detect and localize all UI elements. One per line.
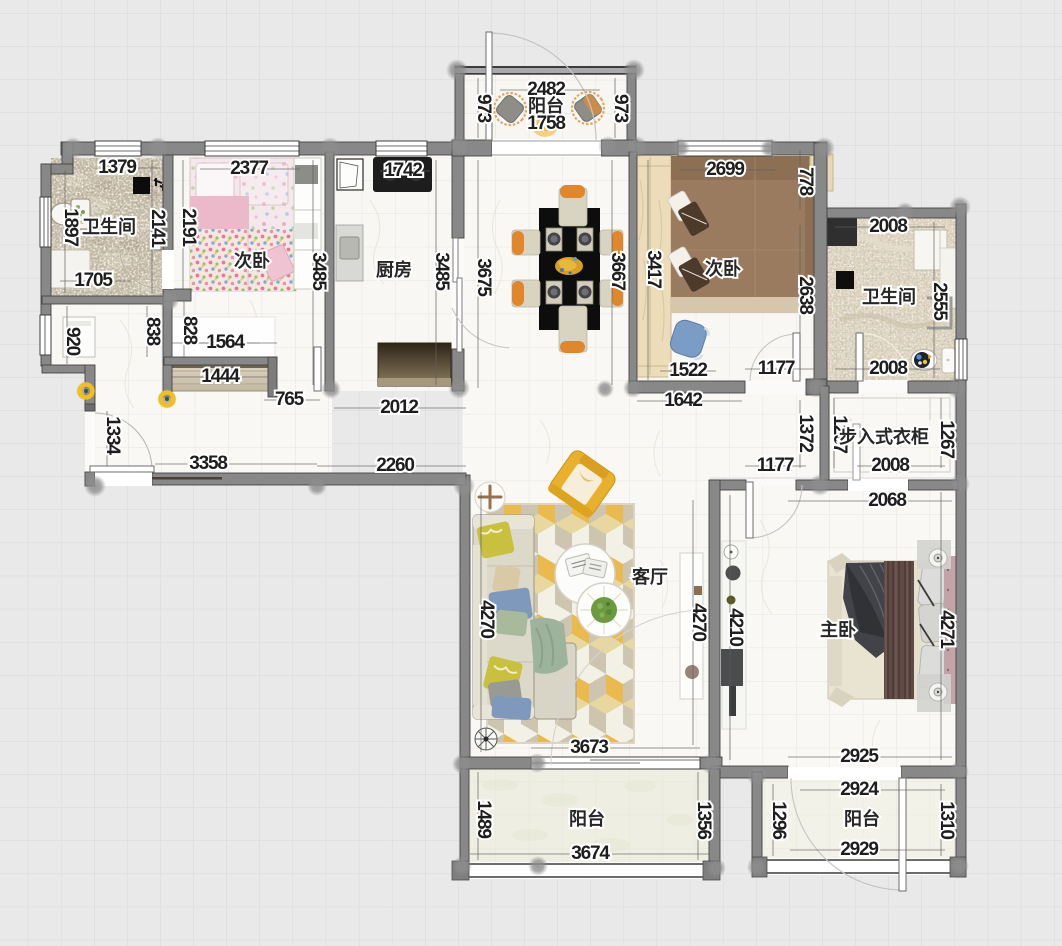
svg-text:主卧: 主卧 (820, 619, 856, 640)
svg-text:步入式衣柜: 步入式衣柜 (839, 426, 929, 447)
svg-text:1379: 1379 (98, 157, 136, 178)
svg-text:2068: 2068 (868, 490, 906, 511)
svg-text:阳台: 阳台 (844, 808, 880, 829)
svg-text:3485: 3485 (431, 252, 452, 291)
svg-text:3667: 3667 (607, 252, 628, 290)
svg-text:1705: 1705 (74, 270, 113, 291)
svg-text:1444: 1444 (201, 366, 240, 387)
svg-text:1564: 1564 (206, 332, 245, 353)
svg-text:3358: 3358 (189, 453, 227, 474)
svg-text:3673: 3673 (570, 737, 608, 758)
svg-text:2260: 2260 (376, 455, 414, 476)
svg-text:1177: 1177 (757, 455, 794, 476)
svg-text:778: 778 (795, 167, 816, 196)
svg-text:838: 838 (142, 317, 163, 346)
svg-text:2191: 2191 (178, 208, 199, 247)
svg-text:920: 920 (62, 327, 83, 356)
svg-text:3417: 3417 (643, 250, 664, 288)
svg-text:1310: 1310 (936, 801, 957, 839)
svg-text:4270: 4270 (476, 600, 497, 638)
svg-text:2924: 2924 (840, 779, 879, 800)
svg-text:1642: 1642 (664, 390, 702, 411)
svg-text:2008: 2008 (869, 216, 907, 237)
svg-text:1897: 1897 (60, 208, 81, 246)
svg-text:1267: 1267 (936, 420, 957, 458)
svg-text:阳台: 阳台 (569, 808, 605, 829)
svg-text:2141: 2141 (147, 209, 168, 248)
svg-text:2555: 2555 (929, 282, 950, 321)
svg-text:2929: 2929 (840, 839, 878, 860)
svg-text:1489: 1489 (473, 800, 494, 838)
svg-text:卫生间: 卫生间 (82, 216, 136, 237)
svg-text:1356: 1356 (693, 801, 714, 839)
svg-text:次卧: 次卧 (234, 250, 270, 271)
svg-text:2925: 2925 (840, 746, 879, 767)
svg-text:2638: 2638 (795, 276, 816, 314)
svg-text:3485: 3485 (308, 252, 329, 291)
svg-text:1522: 1522 (669, 360, 707, 381)
svg-text:3675: 3675 (473, 258, 494, 297)
svg-text:1177: 1177 (758, 358, 795, 379)
svg-text:3674: 3674 (571, 843, 610, 864)
svg-text:4270: 4270 (688, 603, 709, 641)
svg-text:卫生间: 卫生间 (862, 286, 916, 307)
svg-text:厨房: 厨房 (376, 259, 412, 280)
svg-text:4210: 4210 (725, 608, 746, 646)
svg-text:1334: 1334 (102, 416, 123, 455)
svg-text:2377: 2377 (230, 158, 268, 179)
svg-text:1758: 1758 (527, 113, 565, 134)
svg-text:次卧: 次卧 (705, 258, 741, 279)
svg-text:1742: 1742 (384, 160, 422, 181)
svg-text:973: 973 (473, 94, 494, 123)
svg-text:2008: 2008 (871, 455, 909, 476)
svg-text:客厅: 客厅 (632, 566, 668, 587)
svg-text:765: 765 (275, 389, 305, 410)
svg-text:2008: 2008 (869, 358, 907, 379)
svg-text:2012: 2012 (380, 397, 418, 418)
svg-text:1372: 1372 (795, 414, 816, 452)
svg-text:2699: 2699 (706, 159, 744, 180)
svg-text:4271: 4271 (936, 610, 957, 649)
svg-text:973: 973 (610, 94, 631, 123)
svg-text:1296: 1296 (768, 801, 789, 839)
svg-text:828: 828 (179, 316, 200, 345)
